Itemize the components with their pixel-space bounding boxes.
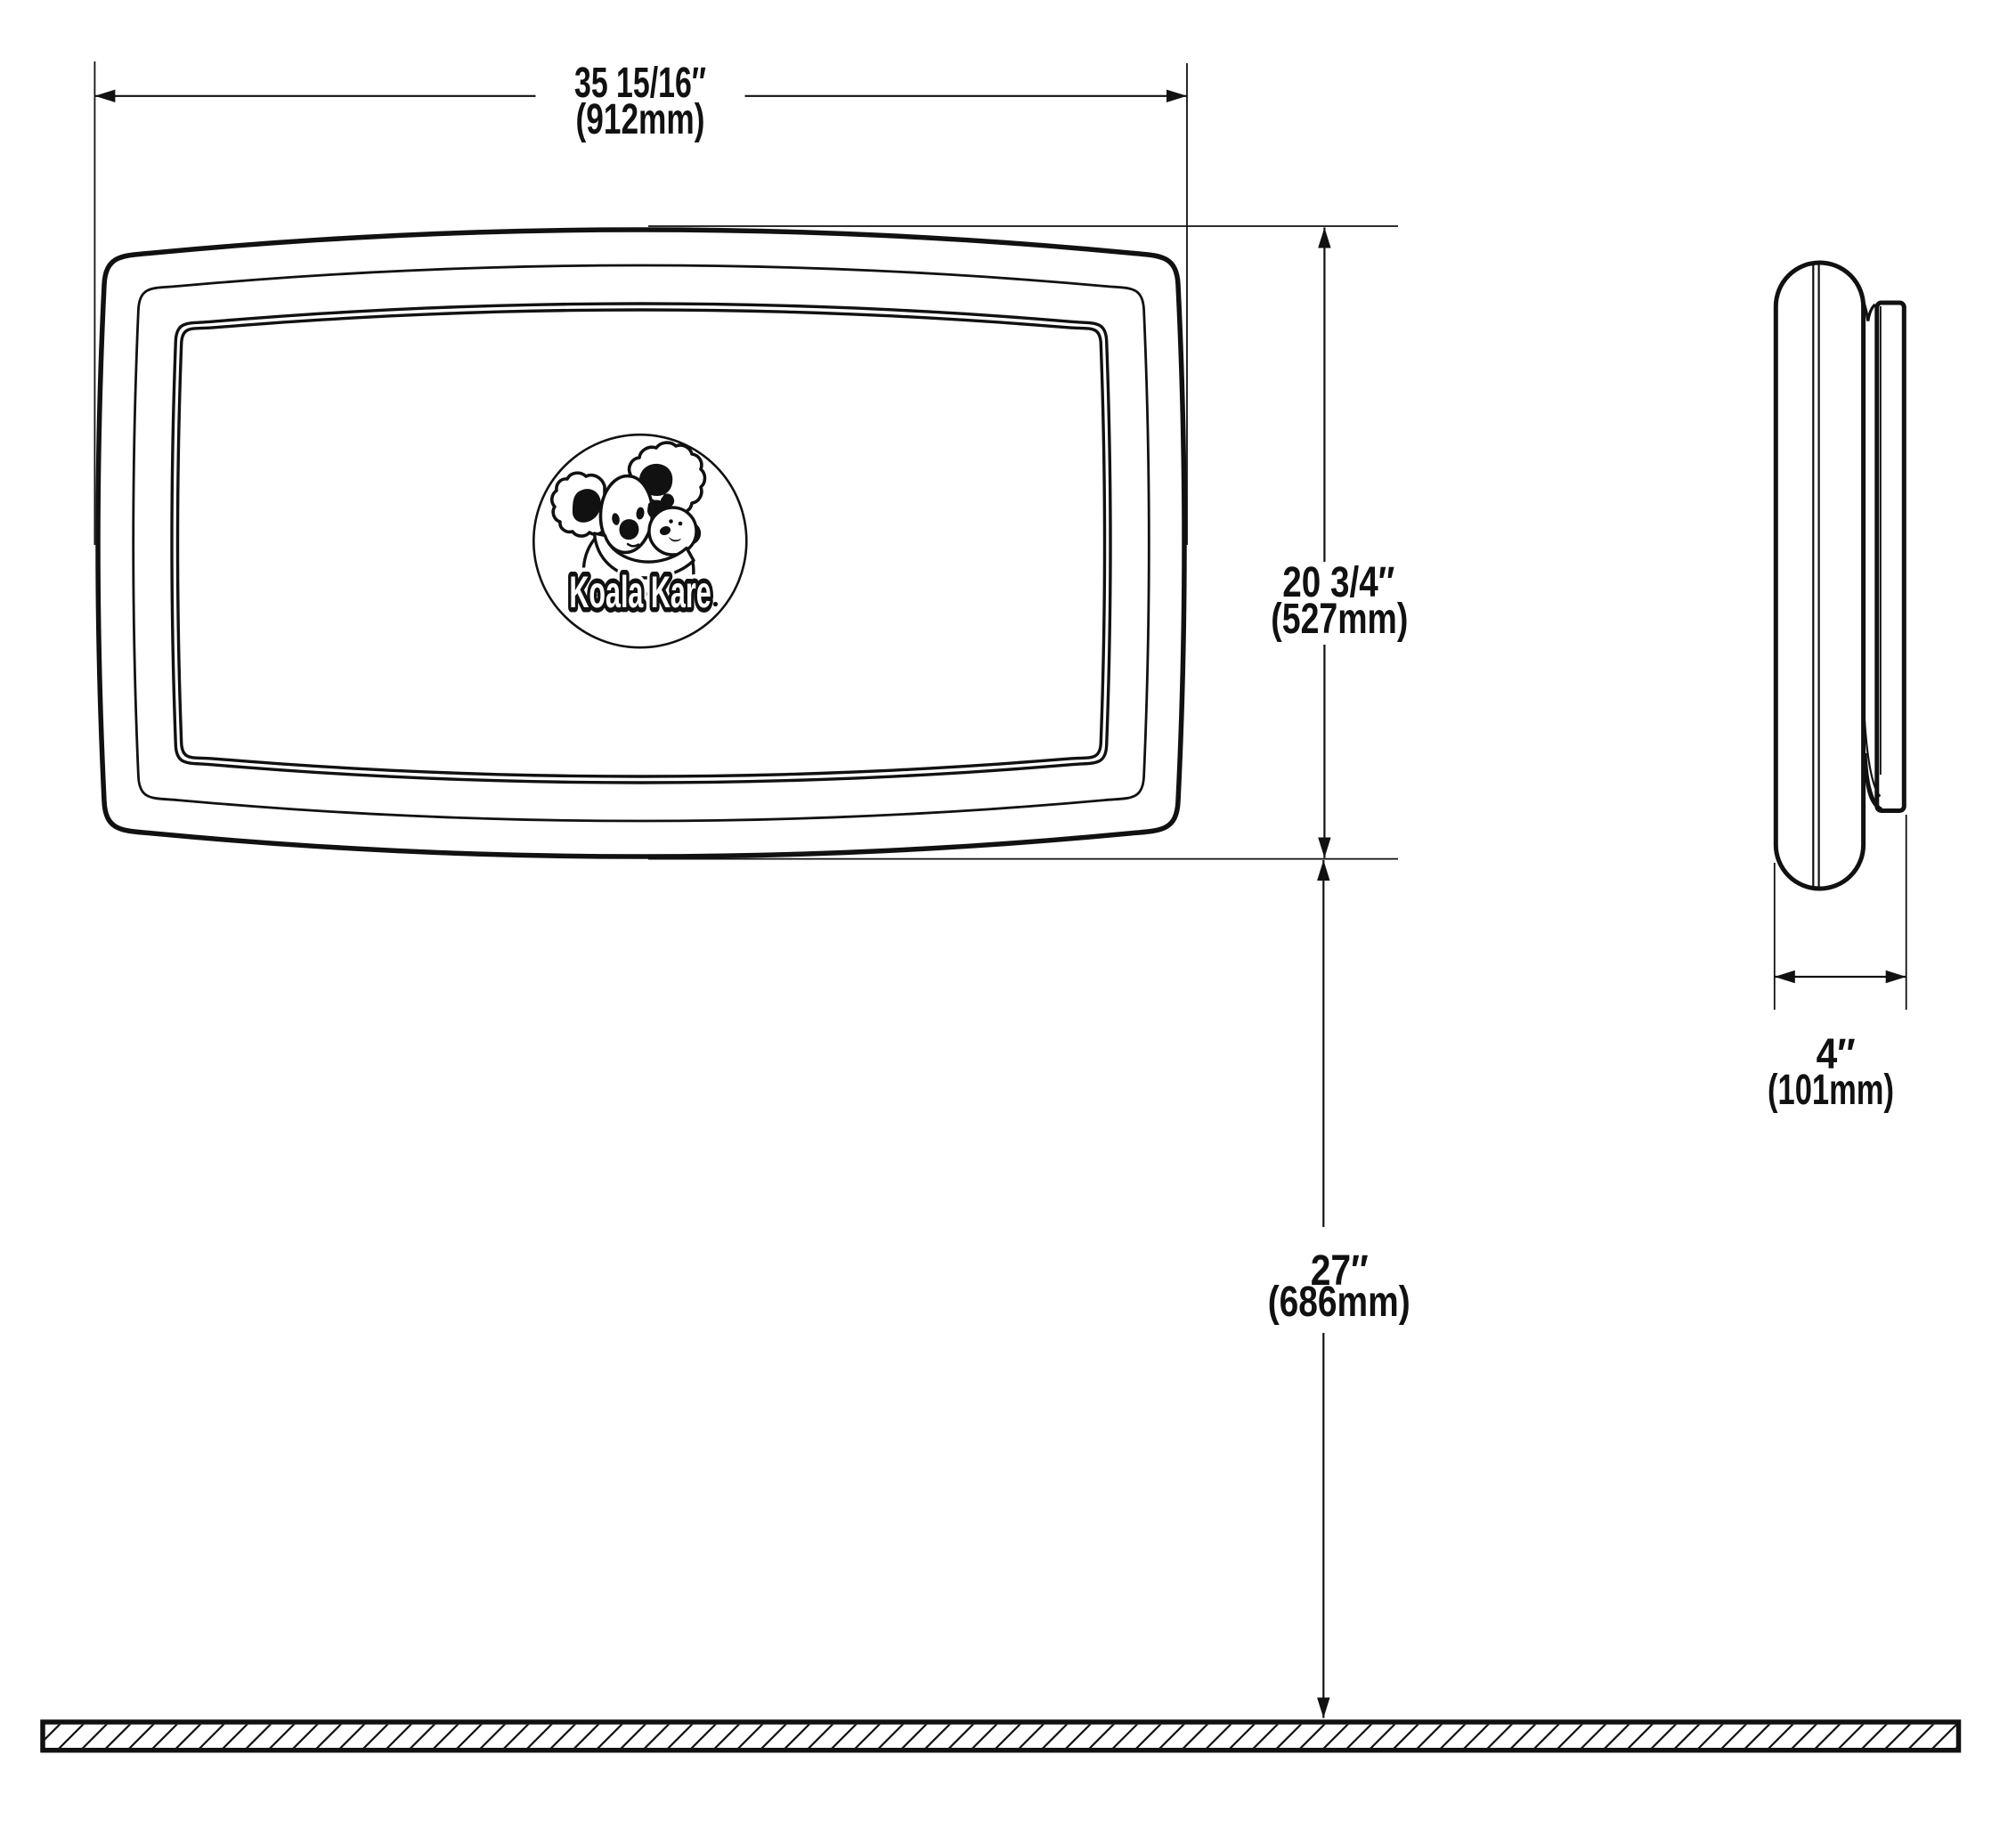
- svg-text:(101mm): (101mm): [1768, 1067, 1894, 1114]
- svg-text:(527mm): (527mm): [1271, 596, 1408, 643]
- svg-text:(912mm): (912mm): [576, 96, 705, 143]
- svg-text:(686mm): (686mm): [1268, 1279, 1410, 1326]
- svg-text:Koala Kare: Koala Kare: [569, 567, 711, 617]
